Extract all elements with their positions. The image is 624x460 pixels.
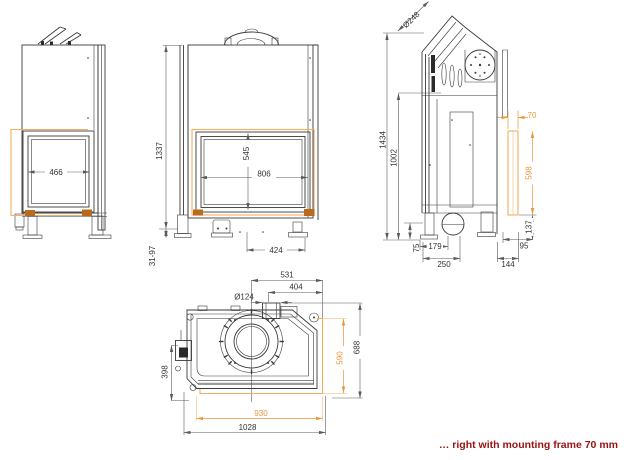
dim-806-label: 806 (257, 170, 271, 179)
caption-text: … right with mounting frame 70 mm (439, 439, 618, 451)
dim-front-foot-spacing: 424 (247, 232, 305, 255)
dim-rear-total: 144 (498, 232, 519, 269)
dim-front-glass-width: 806 (201, 169, 308, 179)
dim-foot-height: 75 (404, 223, 423, 252)
dim-398-label: 398 (161, 365, 170, 379)
dim-inlet-offset: 179 (420, 236, 448, 251)
front-view: 1337 31-97 545 806 424 (148, 29, 318, 266)
dim-frame-width: 930 (197, 396, 323, 421)
dim-545-label: 545 (242, 146, 251, 160)
dim-side-glass-width: 466 (28, 167, 90, 177)
plan-body (176, 299, 319, 402)
dim-144-label: 144 (501, 260, 515, 269)
plan-view: 531 404 Ø124 398 590 688 (161, 271, 363, 436)
dim-intake-diameter: Ø124 (234, 293, 292, 303)
dim-flue-diameter: Ø248 (398, 2, 429, 32)
profile-mounting-frame (508, 131, 518, 215)
dim-front-glass-height: 545 (241, 134, 252, 210)
technical-drawing: 466 (0, 0, 624, 460)
dim-front-total-height: 1337 (155, 46, 182, 230)
dim-531-label: 531 (280, 271, 294, 280)
side-window-view: 466 (11, 27, 111, 239)
dim-intake-center-offset: 404 (269, 283, 323, 303)
dim-930-label: 930 (254, 409, 268, 418)
dim-250-label: 250 (437, 260, 451, 269)
dim-590-label: 590 (336, 351, 345, 365)
dim-1002-label: 1002 (390, 149, 399, 167)
side-profile-view: Ø248 1434 1002 70 598 137 (379, 2, 537, 270)
dim-124-label: Ø124 (234, 293, 254, 302)
dim-overall-height: 1434 (379, 33, 425, 240)
dim-1337-label: 1337 (155, 142, 164, 160)
dim-248-label: Ø248 (401, 9, 422, 29)
dim-frame-bottom-offset: 137 (519, 215, 537, 240)
dim-137-label: 137 (525, 220, 534, 234)
dim-plan-frame-depth: 590 (323, 319, 347, 394)
profile-body (421, 16, 508, 239)
dim-31-97-label: 31-97 (148, 245, 157, 266)
dim-424-label: 424 (269, 246, 283, 255)
dim-1434-label: 1434 (379, 131, 388, 149)
dim-598-label: 598 (525, 166, 534, 180)
dim-404-label: 404 (289, 283, 303, 292)
dim-95-label: 95 (520, 242, 529, 251)
dim-front-leg-adjustment: 31-97 (148, 230, 166, 267)
dim-75-label: 75 (412, 243, 421, 252)
dim-frame-length: 598 (524, 132, 534, 215)
dim-base-depth: 250 (423, 236, 460, 269)
technical-drawing-page: 466 (0, 0, 624, 460)
dim-688-label: 688 (353, 340, 362, 354)
dim-body-height: 1002 (390, 93, 442, 240)
dim-179-label: 179 (428, 242, 442, 251)
dim-70-label: 70 (528, 111, 537, 120)
dim-frame-depth: 70 (498, 111, 537, 130)
dim-1028-label: 1028 (239, 423, 257, 432)
dim-466-label: 466 (49, 168, 63, 177)
